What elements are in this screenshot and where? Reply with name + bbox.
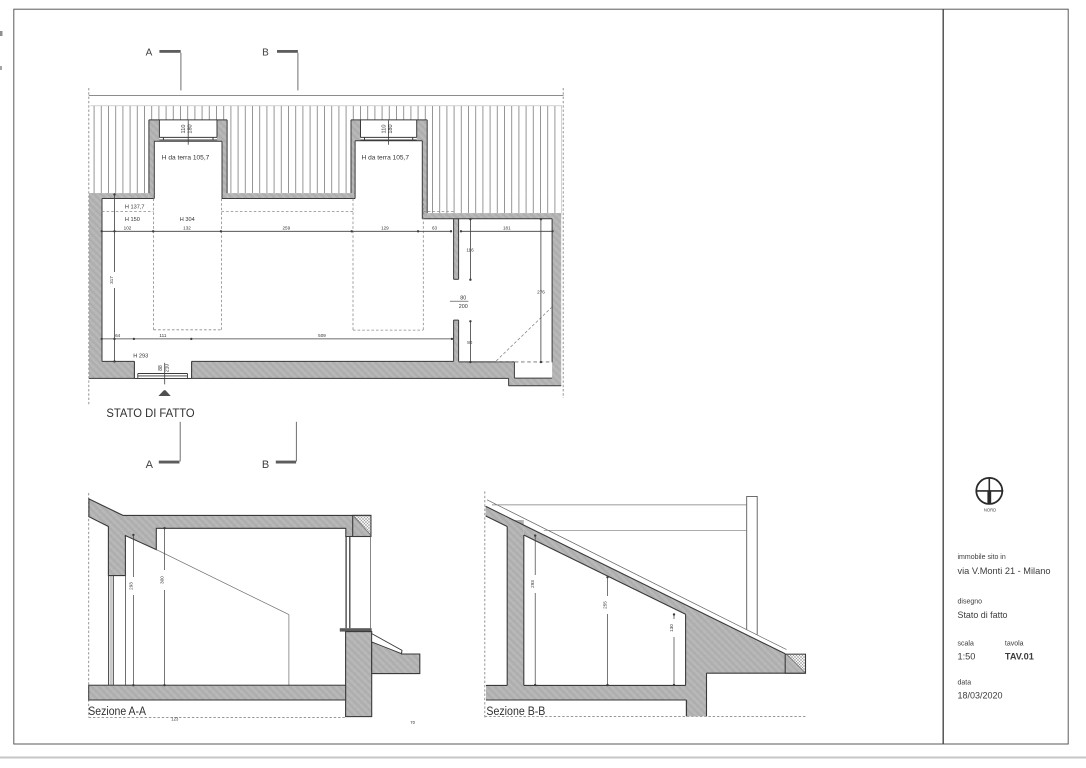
svg-text:NORD: NORD [984,508,996,513]
svg-text:A: A [146,48,153,59]
svg-text:181: 181 [503,226,511,231]
svg-text:H 137,7: H 137,7 [125,204,145,210]
svg-text:64: 64 [115,333,121,338]
svg-text:TAV.01: TAV.01 [1005,651,1034,661]
svg-text:180: 180 [388,124,394,133]
svg-text:123: 123 [171,717,179,722]
svg-text:via V.Monti 21 - Milano: via V.Monti 21 - Milano [958,566,1051,576]
svg-text:276: 276 [537,289,545,294]
svg-text:102: 102 [124,226,132,231]
svg-text:259: 259 [282,226,290,231]
svg-text:63: 63 [432,226,438,231]
svg-text:300: 300 [160,576,165,584]
svg-text:111: 111 [159,333,166,338]
svg-text:H 150: H 150 [125,217,140,223]
svg-text:tavola: tavola [1005,641,1024,648]
svg-text:Sezione B-B: Sezione B-B [486,704,545,718]
svg-text:317: 317 [109,276,114,284]
svg-text:88: 88 [158,365,164,371]
svg-text:disegno: disegno [958,599,983,606]
svg-text:132: 132 [183,226,191,231]
svg-text:B: B [262,48,269,59]
svg-text:80: 80 [460,296,466,302]
svg-text:A: A [146,459,154,471]
svg-text:509: 509 [318,333,326,338]
svg-text:210: 210 [165,364,171,373]
svg-text:data: data [958,679,972,686]
svg-text:130: 130 [669,624,674,632]
svg-text:Sezione A-A: Sezione A-A [88,704,146,718]
svg-text:1:50: 1:50 [958,651,976,661]
svg-text:H da terra 105,7: H da terra 105,7 [362,155,410,161]
svg-text:scala: scala [958,641,974,648]
svg-text:STATO DI FATTO: STATO DI FATTO [106,406,194,420]
svg-text:180: 180 [188,124,194,133]
svg-text:116: 116 [466,248,474,253]
svg-text:200: 200 [459,304,468,310]
svg-text:110: 110 [381,125,387,134]
svg-text:80: 80 [467,340,473,345]
svg-text:immobile sito in: immobile sito in [958,554,1006,561]
svg-text:293: 293 [128,582,133,590]
svg-text:H da terra 105,7: H da terra 105,7 [162,155,210,161]
svg-text:H 304: H 304 [180,217,195,223]
svg-text:293: 293 [530,580,535,588]
svg-text:255: 255 [603,601,608,609]
svg-text:H 293: H 293 [133,354,148,360]
svg-text:Stato di fatto: Stato di fatto [958,610,1008,620]
svg-text:70: 70 [410,720,415,725]
svg-text:110: 110 [181,125,187,134]
svg-text:18/03/2020: 18/03/2020 [958,691,1003,701]
svg-text:B: B [262,459,269,471]
svg-text:129: 129 [381,226,389,231]
